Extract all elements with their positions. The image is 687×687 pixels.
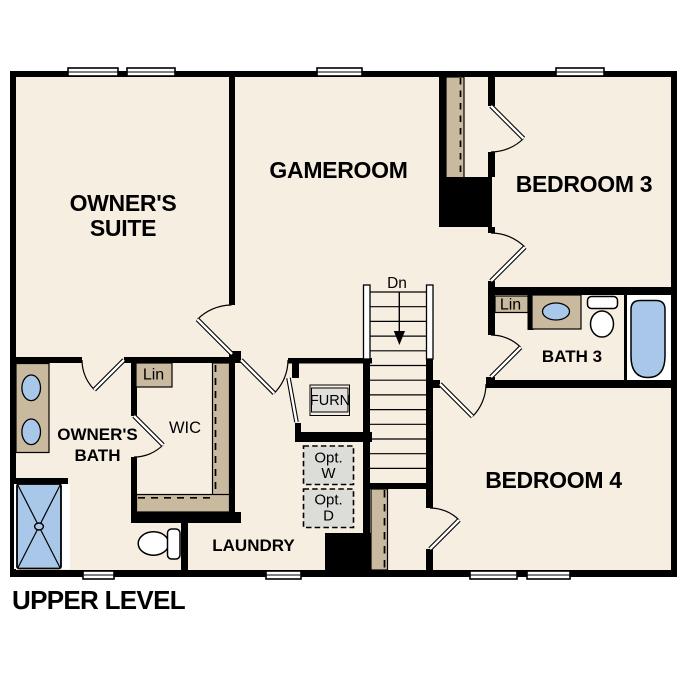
svg-text:FURN: FURN: [310, 393, 350, 409]
svg-text:Dn: Dn: [387, 275, 407, 292]
svg-text:UPPER LEVEL: UPPER LEVEL: [12, 585, 186, 615]
svg-text:OWNER'S: OWNER'S: [57, 425, 138, 444]
svg-text:Lin: Lin: [500, 297, 521, 314]
svg-text:Opt.: Opt.: [314, 492, 342, 509]
svg-text:WIC: WIC: [169, 419, 201, 437]
svg-text:BATH 3: BATH 3: [542, 347, 602, 366]
svg-text:BATH: BATH: [75, 446, 121, 465]
svg-text:D: D: [323, 508, 334, 525]
svg-text:LAUNDRY: LAUNDRY: [212, 536, 295, 555]
svg-text:Opt.: Opt.: [314, 450, 342, 467]
svg-text:BEDROOM 4: BEDROOM 4: [485, 467, 622, 493]
svg-text:Lin: Lin: [143, 367, 164, 384]
svg-text:GAMEROOM: GAMEROOM: [269, 157, 407, 183]
svg-text:SUITE: SUITE: [90, 215, 156, 241]
svg-text:OWNER'S: OWNER'S: [70, 190, 177, 216]
svg-text:W: W: [321, 465, 336, 482]
svg-text:BEDROOM 3: BEDROOM 3: [516, 171, 653, 197]
